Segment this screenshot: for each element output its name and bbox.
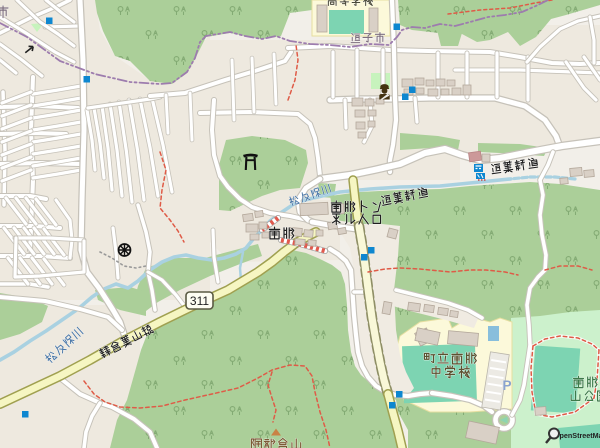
svg-text:penStreetMap: penStreetMap [560, 431, 600, 440]
svg-text:P: P [502, 378, 511, 393]
svg-text:311: 311 [190, 294, 209, 308]
